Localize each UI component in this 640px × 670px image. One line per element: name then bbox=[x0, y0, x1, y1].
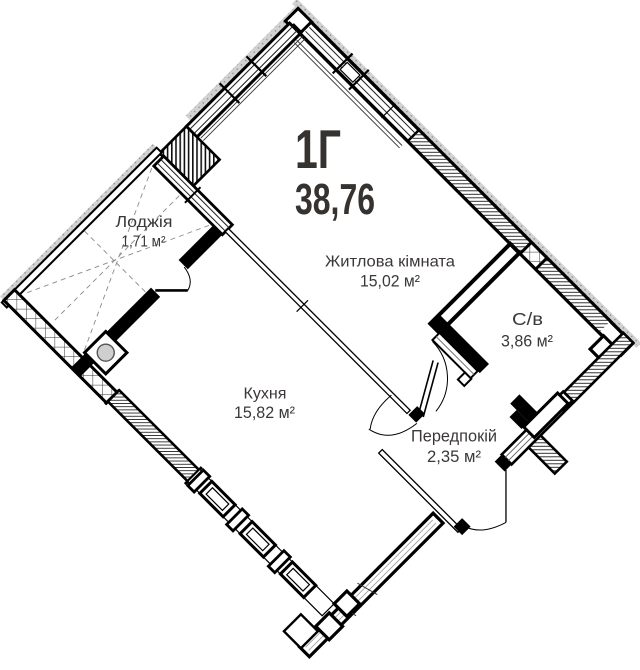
svg-text:Житлова кімната: Житлова кімната bbox=[325, 254, 455, 271]
svg-text:15,82 м²: 15,82 м² bbox=[234, 404, 295, 422]
svg-text:1Г: 1Г bbox=[295, 118, 341, 180]
svg-text:2,35 м²: 2,35 м² bbox=[427, 448, 481, 466]
svg-text:15,02 м²: 15,02 м² bbox=[360, 273, 420, 291]
svg-text:Передпокій: Передпокій bbox=[411, 428, 497, 446]
svg-text:Кухня: Кухня bbox=[244, 386, 287, 403]
svg-text:Лоджія: Лоджія bbox=[116, 214, 173, 231]
svg-text:38,76: 38,76 bbox=[295, 175, 375, 224]
svg-text:3,86 м²: 3,86 м² bbox=[501, 332, 553, 351]
svg-text:1,71 м²: 1,71 м² bbox=[122, 234, 166, 251]
svg-text:С/в: С/в bbox=[512, 309, 543, 329]
